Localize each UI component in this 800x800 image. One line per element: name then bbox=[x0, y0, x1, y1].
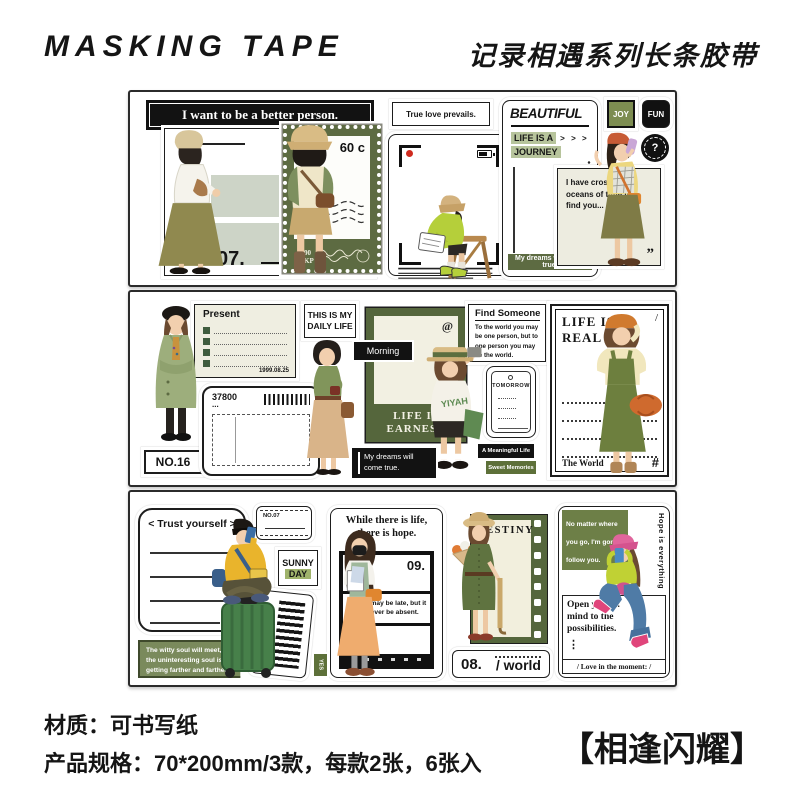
follow-card: No matter where you go, I'm gonna follow… bbox=[558, 506, 670, 678]
sweet-label: Sweet Memories bbox=[486, 461, 536, 474]
question-text: ? bbox=[644, 137, 666, 159]
joy-text: JOY bbox=[613, 110, 629, 119]
product-name: 【相逢闪耀】 bbox=[560, 722, 764, 771]
sweet-text: Sweet Memories bbox=[488, 465, 533, 471]
woman-bouquet-umbrella-illustration bbox=[444, 510, 516, 650]
woman-khaki-shorts-illustration bbox=[266, 118, 354, 275]
world-label: 08. / world bbox=[452, 650, 550, 678]
daily-life-text: THIS IS MY DAILY LIFE bbox=[307, 310, 353, 332]
tape-strip-2: NO.16 Present 1999.08.25 THIS IS MY DAIL… bbox=[128, 290, 677, 487]
tag-hole-icon bbox=[508, 375, 513, 380]
ticket-dots: ... bbox=[212, 400, 219, 409]
girl-jeans-phone-illustration bbox=[565, 529, 669, 651]
yes-label: YES bbox=[314, 654, 327, 676]
present-date: 1999.08.25 bbox=[259, 368, 289, 374]
tape-strip-1: I want to be a better person. True happi… bbox=[128, 90, 677, 287]
sprocket-hole bbox=[534, 615, 541, 622]
sprocket-hole bbox=[534, 520, 541, 527]
sprocket-hole bbox=[534, 599, 541, 606]
tag-line bbox=[498, 428, 528, 429]
woman-olive-skirt-illustration bbox=[136, 122, 248, 274]
sprocket-hole bbox=[534, 552, 541, 559]
at-symbol: @ bbox=[442, 319, 453, 334]
girl-on-suitcase-illustration bbox=[188, 510, 298, 682]
meaningful-text: A Meaningful Life bbox=[482, 448, 530, 454]
beautiful-title: BEAUTIFUL bbox=[510, 106, 582, 121]
spec-line: 产品规格：70*200mm/3款，每款2张，6张入 bbox=[44, 746, 482, 778]
number-09: 09. bbox=[407, 558, 425, 573]
material-line: 材质：可书写纸 bbox=[44, 708, 198, 740]
product-showcase-page: { "page": { "brand": "MASKING TAPE", "se… bbox=[0, 0, 800, 800]
brand-title: MASKING TAPE bbox=[44, 30, 344, 64]
true-love-text: True love prevails. bbox=[406, 110, 476, 119]
woman-trench-coat-illustration bbox=[140, 304, 210, 446]
no16-label: NO.16 bbox=[144, 450, 202, 474]
dreams-box-text: My dreams will come true. bbox=[358, 452, 430, 474]
number-08: 08. bbox=[461, 656, 482, 673]
ticket-divider bbox=[235, 417, 236, 463]
check-row bbox=[203, 349, 287, 356]
tag-line bbox=[498, 418, 516, 419]
sprocket-hole bbox=[534, 568, 541, 575]
yes-text: YES bbox=[318, 659, 324, 670]
tomorrow-tag: TOMORROW bbox=[486, 366, 536, 438]
life-is-a-highlight: LIFE IS A bbox=[511, 132, 556, 144]
fun-text: FUN bbox=[648, 110, 664, 119]
tag-line bbox=[498, 408, 516, 409]
woman-cup-illustration bbox=[296, 336, 358, 476]
check-row bbox=[203, 327, 287, 334]
world-text: / world bbox=[496, 657, 541, 673]
journey-highlight: JOURNEY bbox=[511, 146, 561, 158]
sprocket-hole bbox=[534, 536, 541, 543]
tag-line bbox=[498, 398, 516, 399]
sprocket-hole bbox=[534, 583, 541, 590]
series-title: 记录相遇系列长条胶带 bbox=[468, 34, 758, 73]
tomorrow-text: TOMORROW bbox=[492, 383, 530, 389]
morning-text: Morning bbox=[367, 346, 400, 356]
tape-strip-3: < Trust yourself > The witty soul will m… bbox=[128, 490, 677, 687]
check-row bbox=[203, 360, 287, 367]
check-row bbox=[203, 338, 287, 345]
daily-life-label: THIS IS MY DAILY LIFE bbox=[304, 304, 356, 338]
meaningful-label: A Meaningful Life bbox=[478, 444, 534, 458]
true-love-label: True love prevails. bbox=[392, 102, 490, 126]
sitting-reader-illustration bbox=[390, 186, 515, 282]
dreams-box: My dreams will come true. bbox=[352, 448, 436, 478]
woman-green-pinafore-illustration bbox=[578, 310, 666, 474]
moment-footer: / Love in the moment: / bbox=[563, 659, 665, 673]
no16-text: NO.16 bbox=[156, 455, 191, 469]
question-badge: ? bbox=[641, 134, 669, 162]
film-sprockets bbox=[534, 520, 544, 638]
find-someone-title: Find Someone bbox=[475, 308, 540, 321]
sprocket-hole bbox=[534, 631, 541, 638]
woman-face-mask-illustration bbox=[320, 526, 398, 678]
morning-badge: Morning bbox=[354, 342, 412, 360]
